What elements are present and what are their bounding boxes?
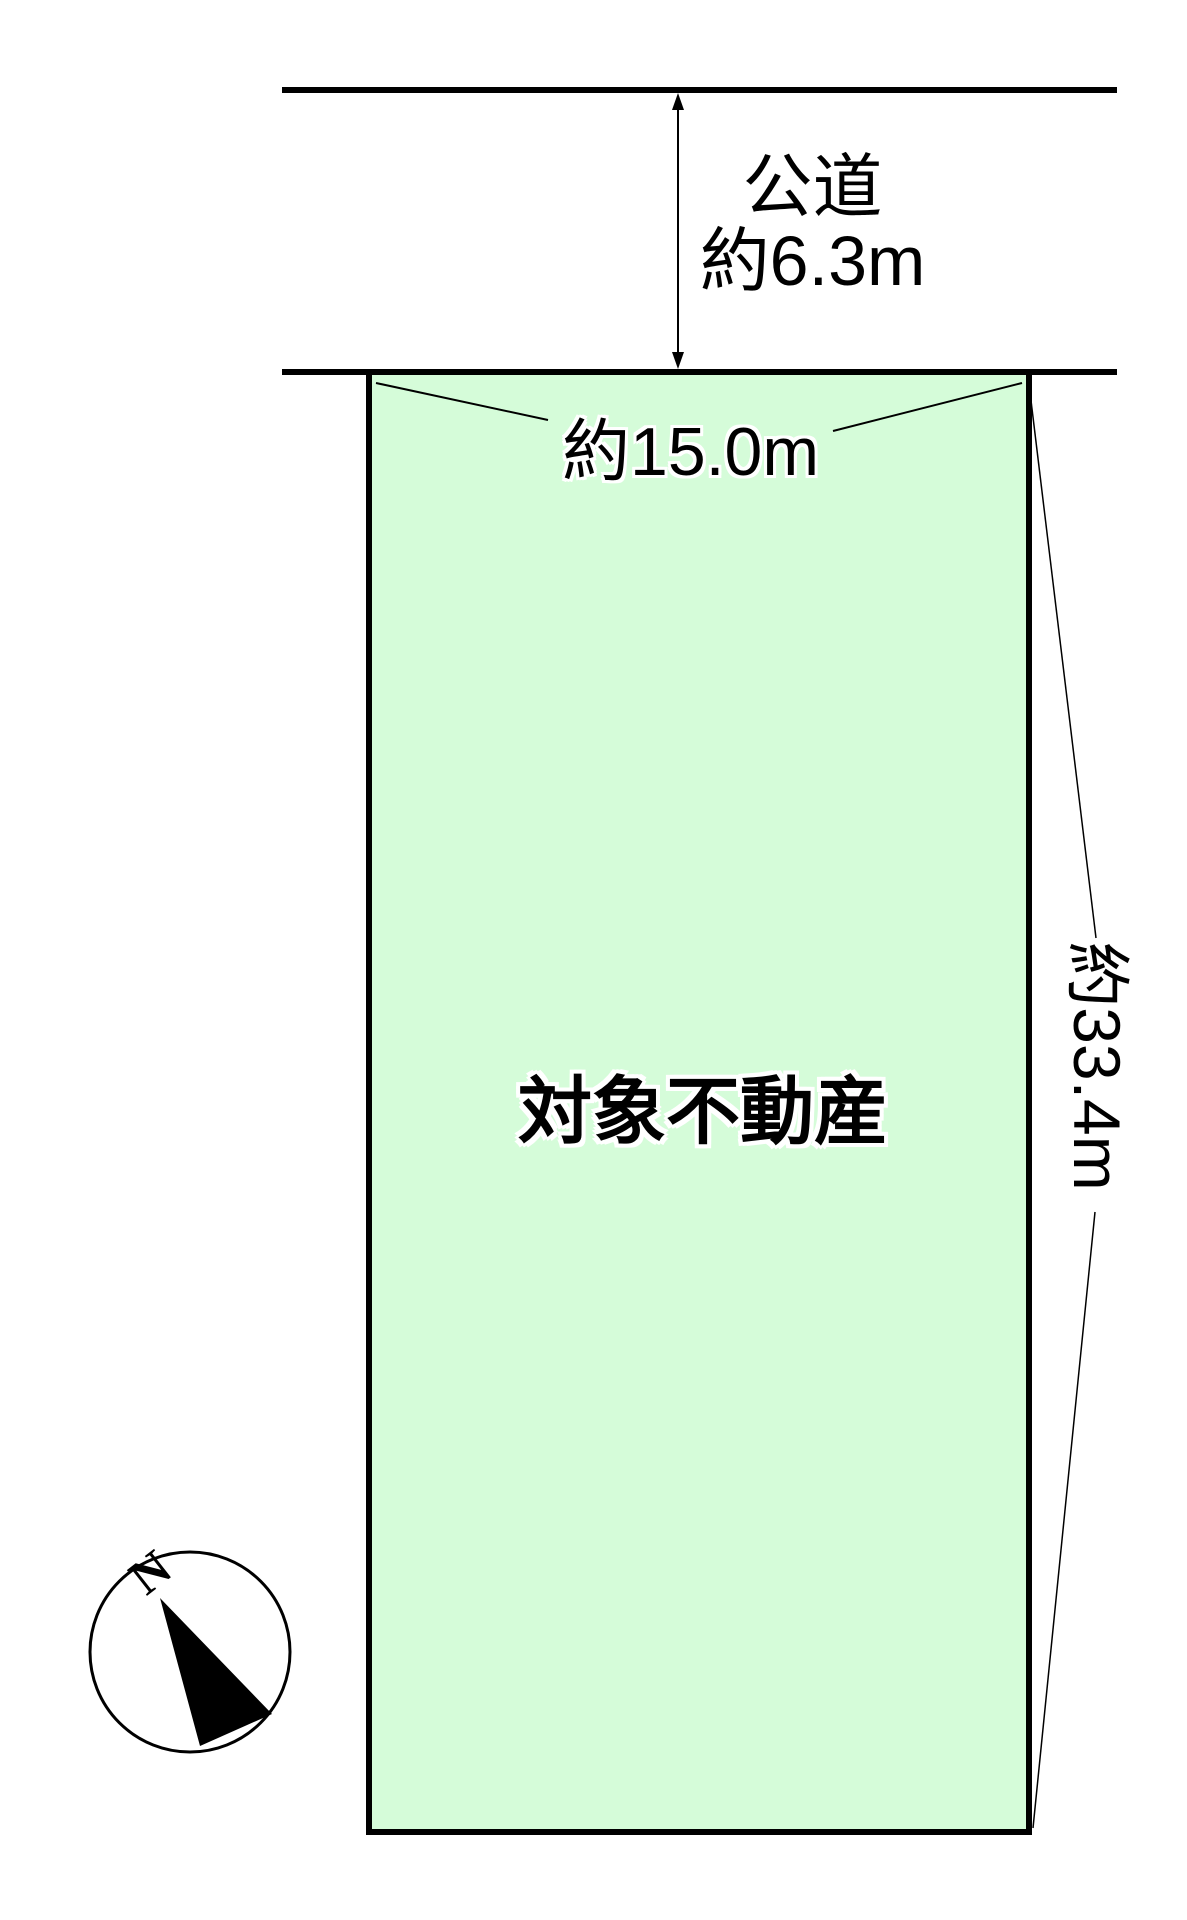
diagram-lines [0,0,1187,1920]
depth-leader-bottom [1033,1212,1095,1828]
road-width-arrowhead-bottom [672,352,684,369]
lot-frontage-label: 約15.0m [562,416,812,489]
road-width-arrowhead-top [672,93,684,110]
depth-leader-top [1029,384,1096,938]
property-title: 対象不動産 [503,1072,903,1152]
road-name-label: 公道 [700,150,925,226]
lot-diagram: 公道 約6.3m 約15.0m 対象不動産 約33.4m N [0,0,1187,1920]
road-width-label: 約6.3m [690,224,935,300]
lot-depth-label: 約33.4m [1062,926,1132,1206]
